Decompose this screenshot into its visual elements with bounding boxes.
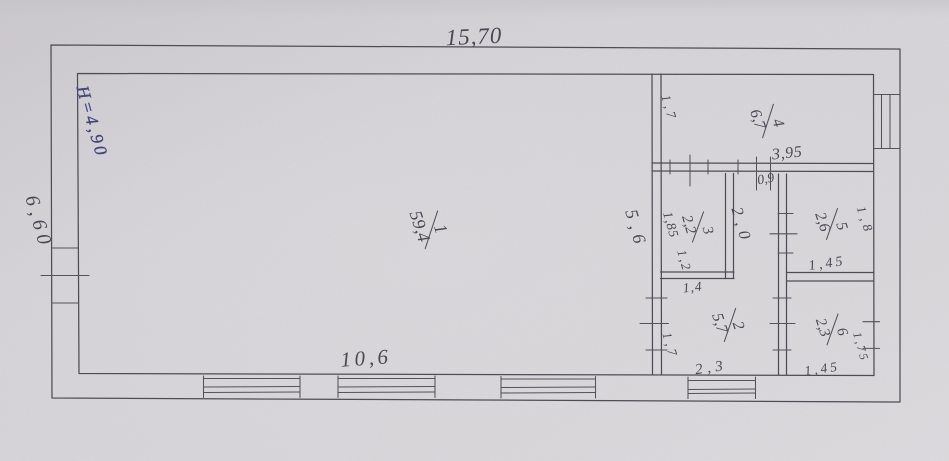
svg-text:15,70: 15,70 xyxy=(445,23,503,50)
svg-text:1,4: 1,4 xyxy=(682,278,703,295)
svg-text:3,95: 3,95 xyxy=(770,143,803,163)
svg-text:0,9: 0,9 xyxy=(756,170,775,188)
svg-text:10,6: 10,6 xyxy=(340,344,393,372)
